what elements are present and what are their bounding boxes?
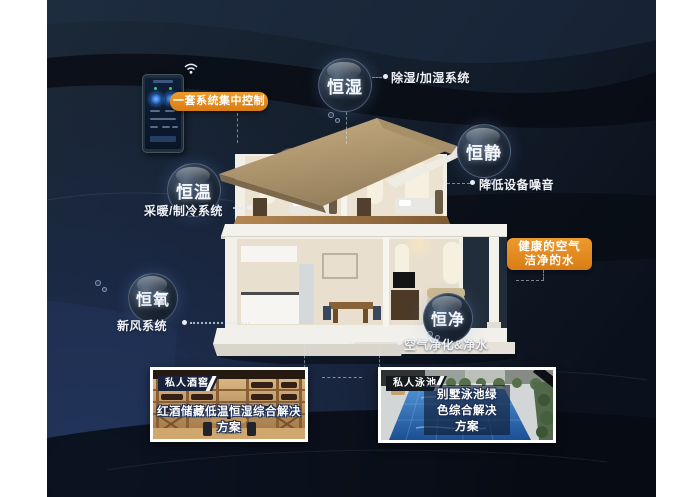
photo-caption-pool: 别墅泳池绿色综合解决方案 bbox=[424, 385, 510, 435]
photo-villa-pool: 私人泳池 别墅泳池绿色综合解决方案 bbox=[378, 367, 556, 443]
connector-control bbox=[237, 113, 238, 143]
connector-between-photos bbox=[322, 377, 362, 378]
bubble-trail-dots bbox=[328, 112, 334, 118]
connector-humidity-down bbox=[346, 112, 347, 144]
connector-callout-h bbox=[516, 280, 544, 281]
wifi-icon bbox=[183, 61, 199, 75]
connector-temperature bbox=[233, 207, 247, 209]
connector-callout-v bbox=[543, 270, 544, 280]
bubble-constant-quiet: 恒静 bbox=[457, 124, 511, 178]
smart-home-phone bbox=[142, 74, 184, 153]
infographic-canvas: 一套系统集中控制 恒湿 除湿/加湿系统 恒静 降低设备噪音 恒温 采暖/制冷系统… bbox=[0, 0, 700, 497]
connector-purity bbox=[350, 343, 397, 344]
central-control-label: 一套系统集中控制 bbox=[170, 92, 268, 111]
connector-oxygen bbox=[190, 322, 250, 324]
connector-wine-photo bbox=[304, 346, 305, 368]
note-purification: 空气净化&净水 bbox=[404, 336, 488, 353]
bubble-constant-oxygen: 恒氧 bbox=[128, 273, 178, 323]
healthy-air-water-callout: 健康的空气 洁净的水 bbox=[507, 238, 592, 270]
connector-pool-photo bbox=[379, 346, 380, 367]
note-fresh-air-system: 新风系统 bbox=[117, 317, 167, 334]
connector-humidity bbox=[372, 77, 382, 78]
photo-caption-wine: 红酒储藏低温恒湿综合解决方案 bbox=[153, 403, 305, 435]
note-humidity-system: 除湿/加湿系统 bbox=[391, 69, 470, 86]
bubble-constant-humidity: 恒湿 bbox=[318, 58, 372, 112]
connector-quiet bbox=[432, 183, 470, 184]
phone-screen bbox=[145, 78, 181, 149]
photo-wine-cellar: 私人酒窖 红酒储藏低温恒湿综合解决方案 bbox=[150, 367, 308, 442]
note-hvac-system: 采暖/制冷系统 bbox=[144, 202, 223, 219]
